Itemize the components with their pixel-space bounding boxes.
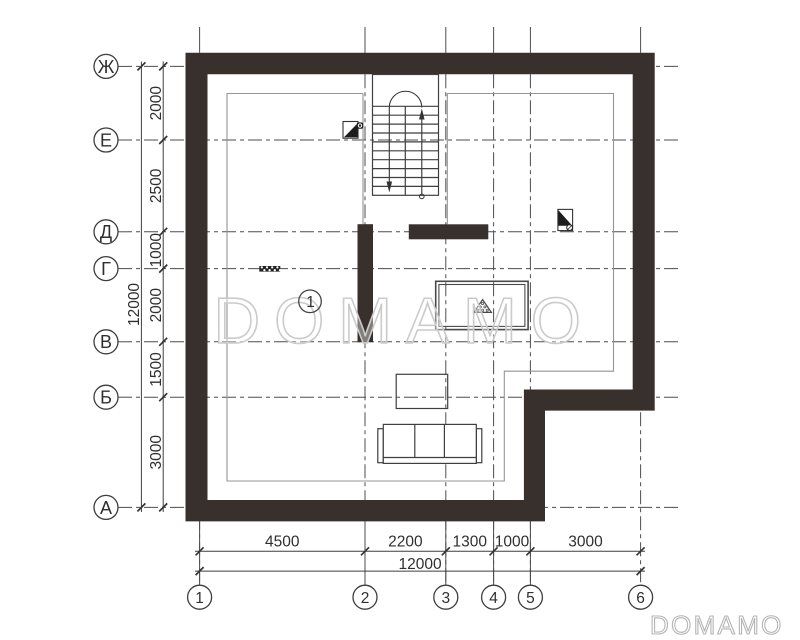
svg-text:4: 4 — [489, 590, 498, 607]
svg-text:DOMAMO: DOMAMO — [650, 610, 784, 640]
svg-text:Г: Г — [101, 259, 111, 279]
svg-text:1000: 1000 — [495, 534, 530, 551]
svg-text:2200: 2200 — [388, 534, 423, 551]
svg-text:DOMAMO: DOMAMO — [214, 285, 595, 357]
svg-text:3: 3 — [441, 590, 450, 607]
svg-text:4500: 4500 — [265, 534, 300, 551]
svg-text:1: 1 — [306, 294, 315, 311]
svg-text:3000: 3000 — [568, 534, 603, 551]
svg-text:А: А — [100, 498, 112, 518]
svg-text:Б: Б — [100, 388, 112, 408]
svg-text:5: 5 — [526, 590, 535, 607]
svg-text:12000: 12000 — [126, 283, 143, 326]
svg-text:3000: 3000 — [148, 435, 165, 470]
svg-text:1: 1 — [195, 590, 204, 607]
svg-text:Е: Е — [100, 130, 112, 150]
svg-text:12000: 12000 — [399, 556, 442, 573]
svg-text:1300: 1300 — [452, 534, 487, 551]
svg-text:2: 2 — [361, 590, 370, 607]
svg-text:2500: 2500 — [148, 168, 165, 203]
svg-text:1500: 1500 — [148, 352, 165, 387]
svg-text:2000: 2000 — [148, 86, 165, 121]
svg-text:Д: Д — [100, 222, 112, 242]
svg-text:Ж: Ж — [98, 57, 115, 77]
svg-text:6: 6 — [636, 590, 645, 607]
svg-text:В: В — [100, 332, 112, 352]
svg-text:1000: 1000 — [148, 233, 165, 268]
svg-text:2000: 2000 — [148, 288, 165, 323]
